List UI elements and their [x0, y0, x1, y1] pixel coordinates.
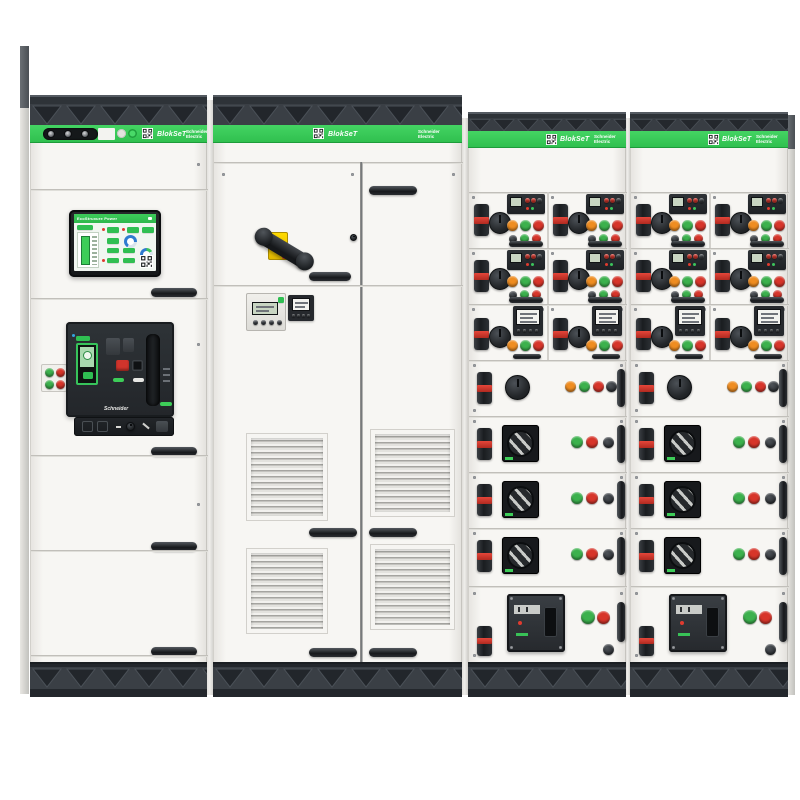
meter-lcd [757, 309, 781, 325]
spring-charge-indicator [160, 402, 172, 406]
door-handle-vertical[interactable] [617, 602, 625, 642]
disconnect-switch-knob[interactable] [507, 542, 534, 569]
pushbutton-amber[interactable] [565, 381, 576, 392]
controller-button-dark[interactable] [537, 254, 542, 259]
controller-lcd [510, 253, 522, 263]
pushbutton-red[interactable] [748, 492, 760, 504]
logo-line1: Schneider [756, 134, 778, 139]
pushbutton-green[interactable] [682, 276, 693, 287]
acb-display-dial [83, 351, 92, 360]
pushbutton-green[interactable] [520, 220, 531, 231]
screw-icon [473, 420, 476, 423]
pushbutton-red[interactable] [586, 548, 598, 560]
breaker-label [676, 605, 702, 614]
louver-grille [247, 549, 327, 633]
meter-button[interactable] [302, 314, 305, 317]
label-bar [163, 374, 170, 376]
disconnect-switch[interactable] [502, 537, 539, 574]
logo-line2: Electric [418, 134, 434, 139]
pushbutton-green[interactable] [599, 276, 610, 287]
door-handle-vertical[interactable] [779, 602, 787, 642]
lock-knob[interactable] [765, 644, 776, 655]
controller-button-red[interactable] [610, 198, 615, 203]
lock-knob[interactable] [603, 549, 614, 560]
door-handle-vertical[interactable] [617, 369, 625, 407]
pushbutton-red[interactable] [695, 340, 706, 351]
controller-button-red[interactable] [766, 198, 771, 203]
meter-button[interactable] [602, 329, 605, 332]
pushbutton-green[interactable] [45, 380, 54, 389]
cabinet-3: BlokSeT Schneider Electric [468, 112, 626, 697]
pushbutton-green[interactable] [599, 220, 610, 231]
led-red [688, 263, 691, 266]
pushbutton-red[interactable] [533, 340, 544, 351]
pushbutton-red[interactable] [597, 611, 610, 624]
drawer-pull-handle[interactable] [754, 354, 782, 359]
screw-icon [620, 592, 623, 595]
hmi-screen[interactable]: EcoStruxure Power [74, 214, 156, 271]
acb-racking-slot[interactable] [146, 334, 160, 406]
breaker-toggle[interactable] [706, 607, 719, 637]
lock-knob[interactable] [603, 437, 614, 448]
pushbutton-red[interactable] [774, 340, 785, 351]
controller-lcd [589, 253, 601, 263]
pushbutton-amber[interactable] [748, 220, 759, 231]
controller-lcd [510, 197, 522, 207]
pushbutton-green[interactable] [761, 340, 772, 351]
led-green [531, 207, 534, 210]
drawer-pull-handle[interactable] [675, 354, 703, 359]
pushbutton-red[interactable] [586, 436, 598, 448]
feeder-unit [469, 360, 627, 416]
disconnect-switch-knob[interactable] [669, 542, 696, 569]
screw-icon [634, 308, 637, 311]
led-red [767, 263, 770, 266]
door-handle-vertical[interactable] [779, 537, 787, 575]
indicator-button[interactable] [47, 130, 55, 138]
screw-icon [559, 597, 562, 600]
logo-line2: Electric [594, 139, 610, 144]
lock-knob[interactable] [765, 437, 776, 448]
meter-button[interactable] [614, 329, 617, 332]
controller-button-red[interactable] [525, 198, 530, 203]
door-handle[interactable] [369, 528, 417, 537]
drawer-pull-handle[interactable] [671, 297, 705, 303]
qr-code-icon [313, 128, 324, 139]
truss-vent-icon [468, 118, 626, 132]
pushbutton-green[interactable] [733, 548, 745, 560]
meter-button[interactable] [776, 329, 779, 332]
pushbutton-amber[interactable] [507, 220, 518, 231]
pushbutton-amber[interactable] [669, 220, 680, 231]
pushbutton-amber[interactable] [727, 381, 738, 392]
disconnect-switch-knob[interactable] [669, 430, 696, 457]
lock-knob[interactable] [765, 493, 776, 504]
meter-button[interactable] [529, 329, 532, 332]
led-red [605, 207, 608, 210]
drawer-pull-handle[interactable] [588, 297, 622, 303]
door-handle[interactable] [309, 272, 351, 281]
cabinet-4-body [630, 148, 788, 662]
switch-feeder-unit [469, 528, 627, 586]
drawer-pull-handle[interactable] [750, 241, 784, 247]
indicator-button[interactable] [81, 130, 89, 138]
pushbutton-green[interactable] [741, 381, 752, 392]
door-handle-vertical[interactable] [617, 481, 625, 519]
pushbutton-amber[interactable] [669, 340, 680, 351]
lock-knob[interactable] [603, 644, 614, 655]
lcd-line [761, 321, 778, 323]
label-tick [680, 607, 682, 612]
label-bar [163, 380, 170, 382]
drawer-pull-handle[interactable] [750, 297, 784, 303]
door-handle[interactable] [151, 288, 197, 297]
controller-button-red[interactable] [531, 254, 536, 259]
racking-knob[interactable] [126, 422, 135, 431]
switch-feeder-unit [631, 416, 789, 472]
led-green-charged [113, 378, 124, 382]
controller-button-red[interactable] [772, 198, 777, 203]
pushbutton-red[interactable] [612, 276, 623, 287]
controller-lcd [589, 197, 601, 207]
meter-button[interactable] [770, 329, 773, 332]
meter-button[interactable] [261, 320, 266, 325]
meter-button[interactable] [596, 329, 599, 332]
screw-icon [452, 173, 455, 176]
meter-button[interactable] [685, 329, 688, 332]
lock-knob[interactable] [606, 381, 617, 392]
pushbutton-amber[interactable] [669, 276, 680, 287]
drawer-unit [548, 248, 627, 304]
meter-button[interactable] [292, 314, 295, 317]
end-frame-right-cap [787, 115, 795, 149]
mccb-section [631, 586, 789, 662]
pushbutton-red[interactable] [56, 368, 65, 377]
pushbutton-red[interactable] [755, 381, 766, 392]
hmi-button-chip[interactable] [107, 238, 119, 244]
screw-icon [635, 364, 638, 367]
screw-icon [473, 654, 476, 657]
meter-button[interactable] [307, 314, 310, 317]
pushbutton-green[interactable] [733, 436, 745, 448]
disconnect-switch[interactable] [664, 481, 701, 518]
pushbutton-red[interactable] [56, 380, 65, 389]
lcd-line [599, 317, 612, 319]
pushbutton-green[interactable] [761, 276, 772, 287]
drawer-pull-handle[interactable] [592, 354, 620, 359]
pushbutton-green[interactable] [761, 220, 772, 231]
door-handle-vertical[interactable] [779, 481, 787, 519]
truss-vent-icon [30, 104, 207, 126]
power-meter [246, 293, 286, 331]
pushbutton-amber[interactable] [586, 276, 597, 287]
controller-button-dark[interactable] [616, 198, 621, 203]
acb-blanking-key [123, 338, 134, 352]
brand-band: BlokSeT Schneider Electric [630, 131, 788, 148]
lock-knob[interactable] [765, 549, 776, 560]
controller-button-red[interactable] [693, 254, 698, 259]
screw-icon [510, 646, 513, 649]
door-handle-vertical[interactable] [779, 369, 787, 407]
lcd-line [682, 317, 695, 319]
hmi-logo-dot [148, 217, 152, 220]
hmi-display[interactable]: EcoStruxure Power [69, 210, 161, 277]
push-off-button[interactable] [116, 360, 129, 371]
meter-button[interactable] [297, 314, 300, 317]
meter-button[interactable] [608, 329, 611, 332]
door-handle-vertical[interactable] [779, 425, 787, 463]
pushbutton-green[interactable] [743, 610, 757, 624]
screw-icon [472, 196, 475, 199]
molded-case-breaker [669, 594, 727, 652]
door-split [360, 162, 363, 662]
trip-button-red[interactable] [680, 621, 684, 625]
controller-button-red[interactable] [604, 254, 609, 259]
screw-icon [635, 654, 638, 657]
lcd-line [761, 317, 774, 319]
meter-button[interactable] [697, 329, 700, 332]
led-green [772, 263, 775, 266]
product-name: BlokSeT [157, 131, 186, 138]
pushbutton-green[interactable] [571, 436, 583, 448]
pushbutton-red[interactable] [759, 611, 772, 624]
logo-line2: Electric [186, 134, 202, 139]
pushbutton-amber[interactable] [748, 276, 759, 287]
door-handle-vertical[interactable] [617, 537, 625, 575]
hmi-button-chip[interactable] [107, 227, 119, 233]
hmi-alarm-dot [102, 228, 105, 231]
pushbutton-red[interactable] [695, 220, 706, 231]
door-handle[interactable] [309, 528, 357, 537]
door-lock[interactable] [350, 234, 357, 241]
qr-code-icon [140, 255, 153, 268]
pushbutton-green[interactable] [581, 610, 595, 624]
meter-button[interactable] [535, 329, 538, 332]
cabinet-1-body: EcoStruxure Power [30, 143, 207, 662]
drawer-unit [469, 192, 548, 248]
drawer-handle-stripe [477, 553, 492, 560]
controller-button-red[interactable] [687, 254, 692, 259]
lcd-line [256, 306, 274, 308]
drawer-pull-handle[interactable] [509, 241, 543, 247]
pushbutton-green[interactable] [599, 340, 610, 351]
meter-button[interactable] [764, 329, 767, 332]
pushbutton-amber[interactable] [586, 220, 597, 231]
controller-button-red[interactable] [693, 198, 698, 203]
logo-line2: Electric [756, 139, 772, 144]
controller-button-dark[interactable] [616, 254, 621, 259]
screw-icon [635, 420, 638, 423]
hmi-header: EcoStruxure Power [74, 214, 156, 223]
hmi-button-chip[interactable] [123, 258, 135, 263]
drawer-pull-handle[interactable] [513, 354, 541, 359]
pushbutton-red[interactable] [612, 220, 623, 231]
drawer-pull-handle[interactable] [588, 241, 622, 247]
indicator-button[interactable] [64, 130, 72, 138]
controller-button-red[interactable] [772, 254, 777, 259]
switch-green-tag [505, 457, 513, 460]
meter-button[interactable] [269, 320, 274, 325]
led-red [767, 207, 770, 210]
meter-button[interactable] [517, 329, 520, 332]
pushbutton-red[interactable] [586, 492, 598, 504]
meter-button[interactable] [679, 329, 682, 332]
controller-button-red[interactable] [610, 254, 615, 259]
cabinet-2-plinth [213, 662, 462, 697]
door-handle[interactable] [369, 648, 417, 657]
controller-button-red[interactable] [531, 198, 536, 203]
led-red [526, 207, 529, 210]
controller-button-red[interactable] [687, 198, 692, 203]
hmi-button-chip[interactable] [107, 248, 119, 253]
pushbutton-green[interactable] [682, 340, 693, 351]
drawer-handle-stripe [477, 497, 492, 504]
meter-button[interactable] [523, 329, 526, 332]
meter-lcd [292, 298, 310, 311]
pushbutton-amber[interactable] [586, 340, 597, 351]
acb-cradle [74, 417, 174, 436]
led-red [526, 263, 529, 266]
disconnect-switch[interactable] [664, 425, 701, 462]
truss-vent-icon [213, 104, 462, 126]
rotary-selector-knob[interactable] [505, 375, 530, 400]
hmi-button-chip[interactable] [142, 227, 154, 233]
screw-icon [551, 196, 554, 199]
controller-button-red[interactable] [766, 254, 771, 259]
pushbutton-green[interactable] [733, 492, 745, 504]
cabinet-2-body [213, 143, 462, 662]
starter-controller [669, 250, 707, 270]
switch-feeder-unit [469, 472, 627, 528]
lcd-line [520, 317, 533, 319]
pushbutton-red[interactable] [533, 276, 544, 287]
screw-icon [782, 592, 785, 595]
meter-button[interactable] [277, 320, 282, 325]
pushbutton-red[interactable] [593, 381, 604, 392]
lamp-green [128, 129, 137, 138]
meter-button[interactable] [758, 329, 761, 332]
end-frame-left [20, 46, 29, 694]
controller-lcd [672, 197, 684, 207]
switch-feeder-unit [631, 472, 789, 528]
cabinet-3-plinth [468, 662, 626, 697]
pushbutton-red[interactable] [774, 220, 785, 231]
schneider-logo: Schneider Electric [756, 134, 778, 145]
meter-drawer-unit [710, 304, 789, 360]
lcd-line [295, 302, 308, 304]
pushbutton-green[interactable] [45, 368, 54, 377]
pushbutton-green[interactable] [579, 381, 590, 392]
drawer-handle-stripe [636, 217, 651, 224]
starter-controller [507, 194, 545, 214]
led-green [531, 263, 534, 266]
controller-button-dark[interactable] [778, 198, 783, 203]
door-handle[interactable] [309, 648, 357, 657]
controller-button-dark[interactable] [537, 198, 542, 203]
pushbutton-red[interactable] [533, 220, 544, 231]
push-on-button[interactable] [132, 360, 143, 371]
voltage-indicator-housing [43, 128, 98, 140]
drawer-handle-stripe [553, 217, 568, 224]
hmi-cubicle-diagram [77, 232, 99, 268]
pushbutton-red[interactable] [695, 276, 706, 287]
pushbutton-green[interactable] [682, 220, 693, 231]
pushbutton-red[interactable] [748, 548, 760, 560]
pushbutton-green[interactable] [520, 340, 531, 351]
disconnect-switch[interactable] [664, 537, 701, 574]
molded-case-breaker [507, 594, 565, 652]
disconnect-switch[interactable] [502, 425, 539, 462]
controller-lcd [751, 197, 763, 207]
door-seam [31, 455, 208, 457]
pushbutton-green[interactable] [571, 548, 583, 560]
rotary-selector-knob[interactable] [667, 375, 692, 400]
starter-controller [748, 250, 786, 270]
disconnect-switch-knob[interactable] [507, 486, 534, 513]
acb-control-display [76, 343, 98, 385]
meter-lcd [595, 309, 619, 325]
door-handle-vertical[interactable] [617, 425, 625, 463]
lock-knob[interactable] [603, 493, 614, 504]
pushbutton-red[interactable] [774, 276, 785, 287]
disconnect-switch-knob[interactable] [507, 430, 534, 457]
controller-button-red[interactable] [525, 254, 530, 259]
door-handle[interactable] [369, 186, 417, 195]
pushbutton-green[interactable] [571, 492, 583, 504]
trip-button-red[interactable] [518, 621, 522, 625]
drawer-unit [710, 248, 789, 304]
pushbutton-amber[interactable] [507, 276, 518, 287]
pushbutton-amber[interactable] [507, 340, 518, 351]
hmi-button-chip[interactable] [127, 227, 139, 233]
hmi-alarm-dot [122, 228, 125, 231]
meter-button[interactable] [691, 329, 694, 332]
controller-button-red[interactable] [604, 198, 609, 203]
hmi-button-chip[interactable] [123, 248, 135, 253]
cradle-port [82, 421, 93, 432]
controller-button-dark[interactable] [699, 198, 704, 203]
screw-icon [197, 503, 200, 506]
meter-button[interactable] [253, 320, 258, 325]
drawer-handle-stripe [715, 217, 730, 224]
controller-button-dark[interactable] [778, 254, 783, 259]
pushbutton-red[interactable] [612, 340, 623, 351]
lcd-line [520, 321, 537, 323]
lock-knob[interactable] [768, 381, 779, 392]
screw-icon [672, 597, 675, 600]
controller-button-dark[interactable] [699, 254, 704, 259]
drawer-unit [548, 192, 627, 248]
disconnect-switch[interactable] [502, 481, 539, 518]
pushbutton-red[interactable] [748, 436, 760, 448]
meter-drawer-unit [548, 304, 627, 360]
hmi-button-chip[interactable] [107, 258, 119, 263]
screw-icon [351, 173, 354, 176]
pushbutton-green[interactable] [520, 276, 531, 287]
screw-icon [473, 364, 476, 367]
drawer-handle-stripe [474, 331, 489, 338]
disconnect-switch-knob[interactable] [669, 486, 696, 513]
pushbutton-amber[interactable] [748, 340, 759, 351]
acb-brand-label: Schneider [104, 407, 128, 412]
drawer-pull-handle[interactable] [671, 241, 705, 247]
drawer-pull-handle[interactable] [509, 297, 543, 303]
acb-display-button[interactable] [83, 372, 93, 379]
truss-vent-icon [468, 667, 626, 689]
cabinet-4: BlokSeT Schneider Electric [630, 112, 788, 697]
brand-band: BlokSeT Schneider Electric [468, 131, 626, 148]
breaker-toggle[interactable] [544, 607, 557, 637]
